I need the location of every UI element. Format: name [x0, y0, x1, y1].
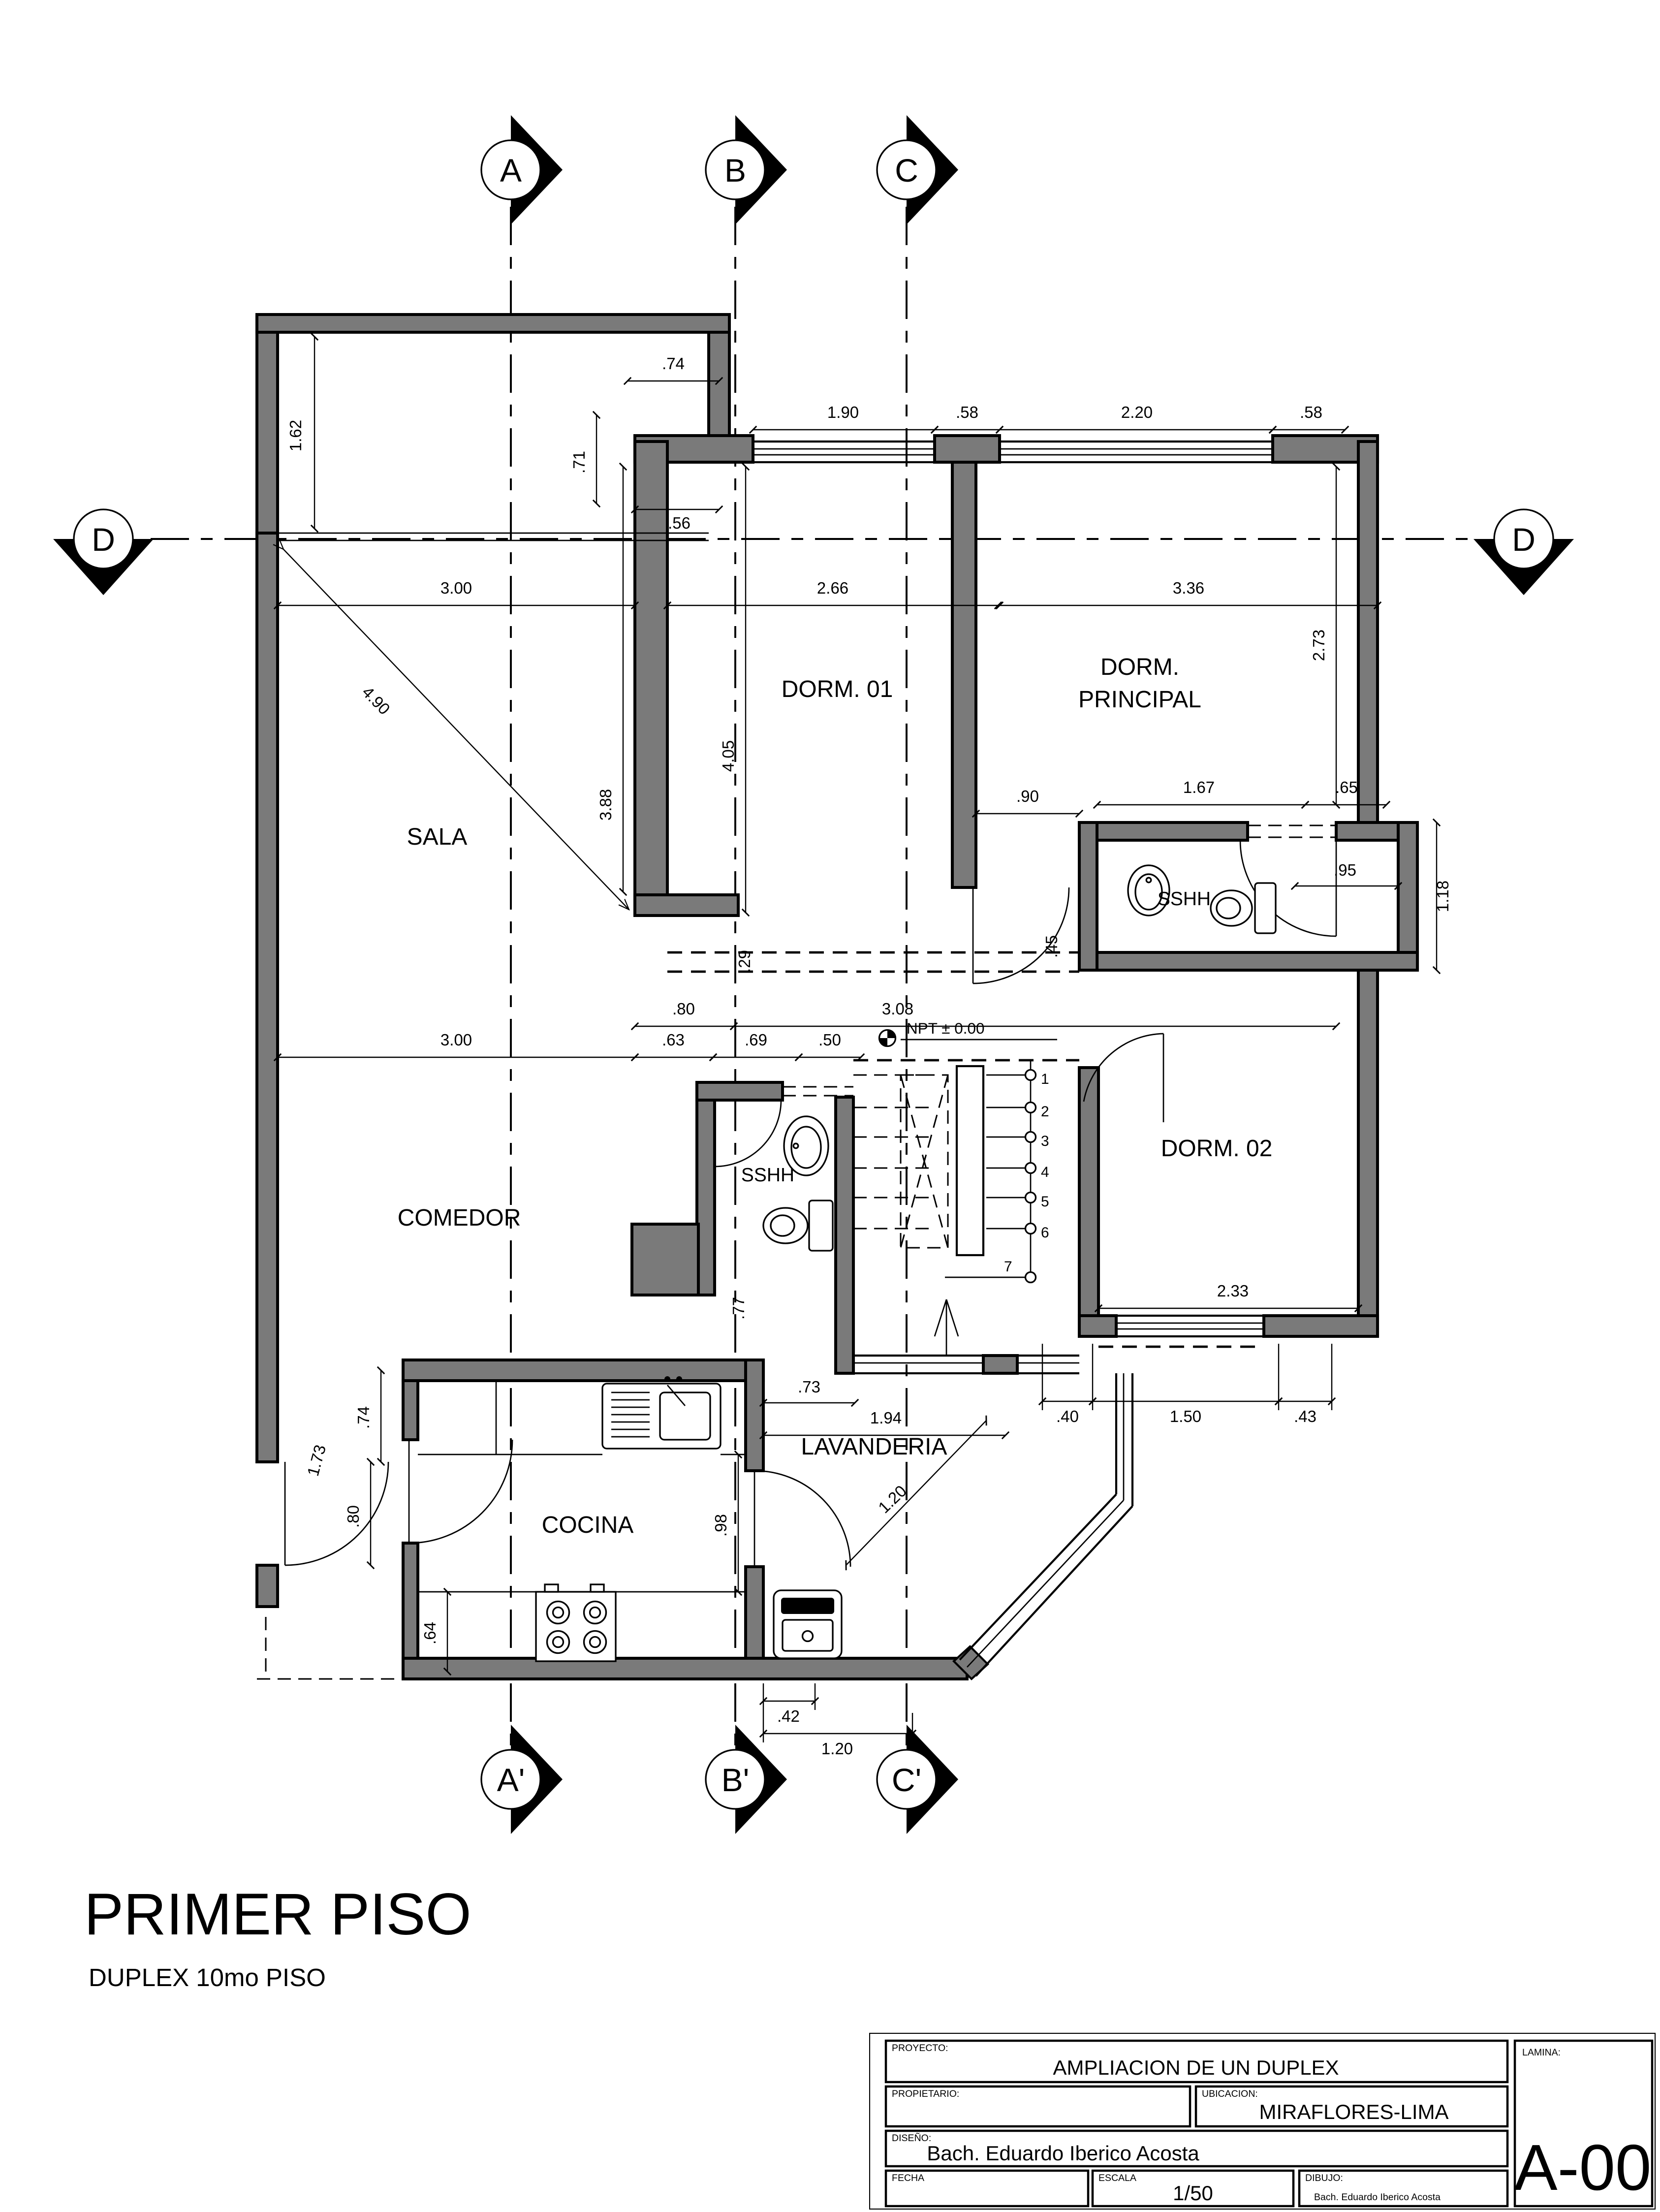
drawing-title: PRIMER PISO DUPLEX 10mo PISO: [84, 1881, 471, 1991]
dim-95: .95: [1334, 861, 1356, 879]
label-dorm-principal-2: PRINCIPAL: [1078, 687, 1201, 713]
dim-98: .98: [712, 1514, 730, 1537]
titleblock-dibujo: DIBUJO: Bach. Eduardo Iberico Acosta: [1299, 2171, 1507, 2206]
fecha-label: FECHA: [892, 2173, 924, 2183]
dibujo-label: DIBUJO:: [1305, 2173, 1343, 2183]
dim-56: .56: [668, 514, 690, 532]
marker-d-left-label: D: [92, 521, 115, 558]
titleblock-propietario: PROPIETARIO:: [886, 2086, 1190, 2126]
label-dorm-principal-1: DORM.: [1100, 654, 1179, 680]
dim-120d: 1.20: [875, 1482, 910, 1517]
plan-subtitle: DUPLEX 10mo PISO: [89, 1963, 326, 1991]
dim-63: .63: [662, 1031, 685, 1049]
marker-c-top-label: C: [895, 152, 918, 189]
wall-west-cap: [257, 1565, 278, 1607]
wall-kitchen-bottom: [403, 1658, 967, 1679]
dim-162: 1.62: [286, 420, 305, 451]
dim-65: .65: [1335, 778, 1358, 796]
stair-step-1: 1: [1041, 1071, 1049, 1087]
window-laundry-vertical: [1116, 1373, 1132, 1506]
label-comedor: COMEDOR: [398, 1205, 521, 1231]
marker-c-top: C: [877, 115, 958, 224]
label-dorm02: DORM. 02: [1161, 1136, 1273, 1162]
proyecto-value: AMPLIACION DE UN DUPLEX: [1053, 2056, 1339, 2079]
plan-title: PRIMER PISO: [84, 1881, 471, 1947]
dim-173: 1.73: [304, 1443, 329, 1478]
marker-b-top-label: B: [724, 152, 746, 189]
toilet-sshh2: [763, 1201, 833, 1251]
wall-terrace-right: [709, 332, 729, 442]
dim-64: .64: [421, 1622, 439, 1644]
propietario-label: PROPIETARIO:: [892, 2088, 959, 2099]
wall-kitchen-divider-lower: [746, 1567, 763, 1658]
dim-58b: .58: [1300, 403, 1322, 421]
marker-c-bottom: C': [877, 1725, 958, 1834]
titleblock-ubicacion: UBICACION: MIRAFLORES-LIMA: [1196, 2086, 1507, 2126]
dim-233: 2.33: [1217, 1282, 1249, 1300]
wall-north-pier: [935, 436, 1000, 462]
title-block: PROYECTO: AMPLIACION DE UN DUPLEX PROPIE…: [870, 2033, 1655, 2209]
wall-kitchen-top: [403, 1360, 763, 1381]
window-dorm-principal: [1000, 442, 1273, 462]
dimensions: .74 1.90 .58 2.20 .58 1.62 .71 .56 3.00 …: [278, 337, 1452, 1758]
dim-167: 1.67: [1183, 778, 1215, 796]
wall-dorm02-left: [1079, 1068, 1098, 1336]
dim-42: .42: [777, 1707, 800, 1725]
stair-rail: [957, 1066, 983, 1255]
stove: [536, 1584, 616, 1661]
marker-d-left: D: [53, 509, 154, 595]
escala-value: 1/50: [1173, 2181, 1213, 2205]
dim-29: .29: [735, 950, 753, 973]
marker-c-bottom-label: C': [892, 1762, 921, 1798]
ubicacion-label: UBICACION:: [1202, 2088, 1258, 2099]
floor-plan-sheet: 1 2 3 4 5 6 7 NPT ± 0.00 .74 1.90 .58 2.…: [0, 0, 1660, 2212]
titleblock-fecha: FECHA: [886, 2171, 1088, 2206]
wall-sshh1-top-left: [1079, 822, 1248, 840]
dim-220: 2.20: [1121, 403, 1153, 421]
wall-sshh1-right: [1398, 822, 1417, 970]
marker-b-bottom-label: B': [721, 1762, 750, 1798]
wall-comedor-block: [632, 1224, 698, 1295]
stair-step-2: 2: [1041, 1104, 1049, 1120]
dim-150: 1.50: [1170, 1407, 1201, 1425]
stairs: 1 2 3 4 5 6 7: [853, 1060, 1049, 1356]
dim-74-top: .74: [662, 354, 685, 373]
dim-336: 3.36: [1173, 579, 1204, 597]
dim-80a: .80: [672, 1000, 695, 1018]
toilet-sshh1: [1211, 883, 1276, 933]
diseno-value: Bach. Eduardo Iberico Acosta: [927, 2142, 1199, 2165]
dim-80b: .80: [344, 1505, 362, 1528]
wall-sshh1-bottom: [1079, 952, 1417, 970]
wall-terrace-left: [257, 315, 278, 533]
label-sshh2: SSHH: [741, 1165, 794, 1186]
marker-a-top-label: A: [500, 152, 522, 189]
wall-kitchen-left-upper: [403, 1381, 418, 1440]
wall-east-upper: [1358, 442, 1378, 822]
label-dorm01: DORM. 01: [782, 676, 893, 702]
wall-terrace-top: [257, 315, 729, 332]
titleblock-proyecto: PROYECTO: AMPLIACION DE UN DUPLEX: [886, 2041, 1507, 2082]
stair-void: [901, 1075, 948, 1248]
wall-dorm01-principal: [952, 462, 976, 887]
dim-190: 1.90: [827, 403, 859, 421]
wall-dorm02-bottom-pier: [1079, 1316, 1116, 1336]
stair-step-3: 3: [1041, 1133, 1049, 1149]
section-markers: A B C A' B' C' D: [53, 115, 1574, 1834]
titleblock-escala: ESCALA 1/50: [1093, 2171, 1293, 2206]
wall-sshh1-top-right: [1336, 822, 1398, 840]
proyecto-label: PROYECTO:: [892, 2043, 948, 2054]
marker-a-top: A: [481, 115, 563, 224]
titleblock-diseno: DISEÑO: Bach. Eduardo Iberico Acosta: [886, 2131, 1507, 2166]
wall-dorm02-bottom-corner: [1264, 1316, 1378, 1336]
kitchen-sink: [602, 1376, 720, 1449]
dim-405: 4.05: [719, 740, 737, 772]
door-comedor-west: [285, 1462, 388, 1565]
wall-kitchen-divider-upper: [746, 1360, 763, 1471]
window-dorm02: [1116, 1316, 1264, 1336]
marker-d-right-label: D: [1512, 521, 1535, 558]
wall-sala-foot: [635, 895, 738, 916]
stair-step-7: 7: [1004, 1259, 1012, 1275]
dim-40: .40: [1056, 1407, 1079, 1425]
marker-b-top: B: [706, 115, 787, 224]
dim-90: .90: [1016, 787, 1039, 805]
door-lavanderia: [754, 1471, 850, 1567]
walls: [257, 315, 1417, 1679]
dim-43: .43: [1294, 1407, 1316, 1425]
dim-308: 3.08: [882, 1000, 913, 1018]
label-cocina: COCINA: [542, 1512, 634, 1538]
dim-120b: 1.20: [821, 1739, 853, 1758]
dim-73: .73: [798, 1378, 820, 1396]
dim-77: .77: [729, 1297, 748, 1320]
dim-50: .50: [818, 1031, 841, 1049]
dim-58a: .58: [956, 403, 978, 421]
wall-sshh2-top: [697, 1082, 783, 1100]
dim-118: 1.18: [1434, 881, 1452, 912]
titleblock-lamina: LAMINA: A-00: [1514, 2041, 1652, 2206]
wall-sala-dorm01: [635, 442, 667, 916]
marker-a-bottom-label: A': [497, 1762, 525, 1798]
marker-b-bottom: B': [706, 1725, 787, 1834]
wall-sshh2-right: [836, 1097, 853, 1373]
stair-step-4: 4: [1041, 1164, 1049, 1180]
wall-sshh1-left: [1079, 822, 1097, 970]
ubicacion-value: MIRAFLORES-LIMA: [1259, 2100, 1449, 2123]
wall-laundry-pier: [983, 1356, 1017, 1373]
diseno-label: DISEÑO:: [892, 2132, 931, 2144]
marker-a-bottom: A': [481, 1725, 563, 1834]
window-stairhall-south2: [1017, 1356, 1079, 1373]
dim-273: 2.73: [1310, 630, 1328, 661]
label-sala: SALA: [407, 824, 468, 850]
dim-490: 4.90: [359, 683, 394, 718]
window-stairhall-south1: [853, 1356, 983, 1373]
window-laundry-angled: [960, 1494, 1132, 1676]
dim-388: 3.88: [596, 789, 615, 821]
dim-194: 1.94: [870, 1409, 902, 1427]
lamina-label: LAMINA:: [1522, 2047, 1561, 2058]
dim-266: 2.66: [817, 579, 848, 597]
dim-300b: 3.00: [440, 1031, 472, 1049]
washing-machine: [774, 1590, 842, 1658]
level-npt-text: NPT ± 0.00: [907, 1019, 985, 1037]
dibujo-value: Bach. Eduardo Iberico Acosta: [1314, 2192, 1441, 2203]
label-lavanderia: LAVANDERIA: [801, 1434, 947, 1460]
dim-300a: 3.00: [440, 579, 472, 597]
marker-d-right: D: [1473, 509, 1574, 595]
wall-east-lower: [1358, 970, 1378, 1336]
dim-74b: .74: [354, 1406, 373, 1429]
dim-69: .69: [745, 1031, 767, 1049]
dim-71: .71: [570, 451, 588, 474]
dim-45: .45: [1042, 935, 1061, 958]
stair-step-5: 5: [1041, 1194, 1049, 1210]
stair-direction-arrow: [935, 1299, 958, 1356]
stair-step-6: 6: [1041, 1225, 1049, 1241]
door-cocina: [409, 1440, 512, 1543]
escala-label: ESCALA: [1098, 2173, 1136, 2183]
label-sshh1: SSHH: [1158, 888, 1211, 910]
lamina-value: A-00: [1514, 2131, 1652, 2204]
wall-west-main: [257, 533, 278, 1462]
windows: [278, 442, 1273, 1676]
